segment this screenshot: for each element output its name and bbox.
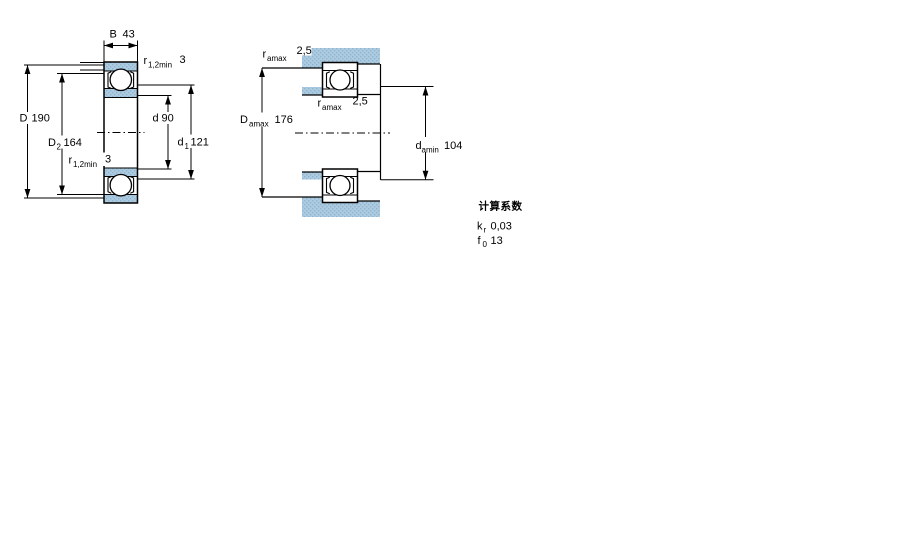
dim-label-r12min-top: r 1,2min 3 [144, 54, 186, 71]
shaft-shoulder-top [302, 87, 323, 95]
ball-right-bottom [330, 176, 350, 196]
dim-label-D2: D 2 164 [48, 137, 82, 153]
housing-shaft-lines [262, 64, 381, 201]
dim-label-d1: d 1 121 [178, 137, 209, 153]
dimension-D2 [57, 74, 104, 195]
bearing-technical-drawing: B 43 r 1,2min 3 D 190 D 2 164 d 90 d 1 1… [0, 0, 900, 560]
ball-top [110, 69, 131, 90]
dimension-B [104, 41, 138, 62]
left-bearing-cross-section [97, 62, 145, 203]
dimension-d1 [138, 85, 195, 179]
dimension-D [24, 65, 104, 198]
dim-label-ramax-top-value: 2,5 [297, 45, 312, 57]
calculation-factors-title: 计算系数 [479, 200, 523, 213]
dim-label-ramax-top: r amax [263, 49, 287, 64]
dim-label-D: D 190 [20, 113, 50, 125]
factor-f0: f 0 13 [478, 235, 503, 250]
dim-label-ramax-mid: r amax 2,5 [318, 96, 368, 114]
dim-label-B: B 43 [110, 29, 135, 41]
calculation-factors-block: 计算系数 k r 0,03 f 0 13 [477, 200, 523, 251]
dim-label-d: d 90 [153, 113, 174, 125]
bearing-dimension-drawing-page: B 43 r 1,2min 3 D 190 D 2 164 d 90 d 1 1… [0, 0, 900, 560]
factor-kr: k r 0,03 [477, 221, 512, 236]
shaft-shoulder-bottom [302, 172, 323, 180]
dimension-d [138, 96, 172, 170]
ball-bottom [110, 175, 131, 196]
right-mounting-view [262, 48, 390, 217]
chamfer-radius-marks [80, 63, 104, 71]
ball-right-top [330, 70, 350, 90]
